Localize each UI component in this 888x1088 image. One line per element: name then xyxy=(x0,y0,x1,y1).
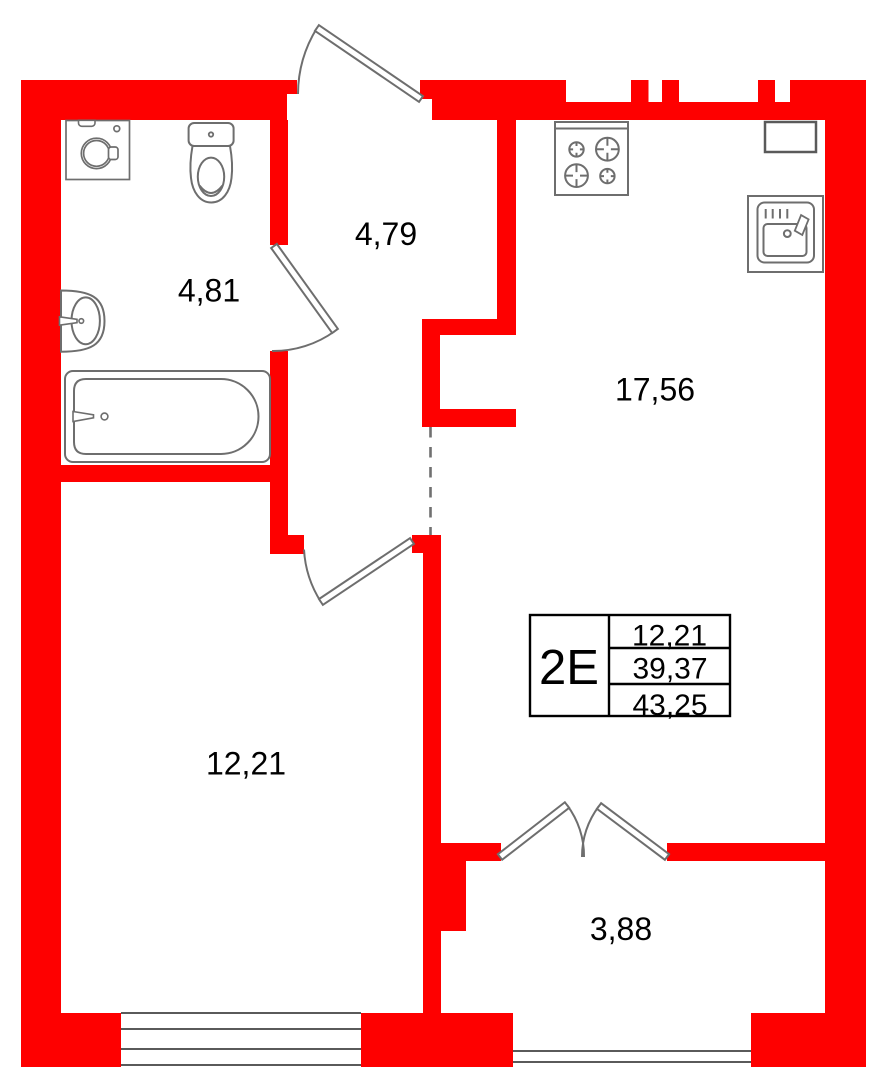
svg-text:12,21: 12,21 xyxy=(206,746,286,782)
svg-text:2E: 2E xyxy=(539,641,599,695)
svg-text:4,79: 4,79 xyxy=(355,216,417,252)
svg-text:3,88: 3,88 xyxy=(590,911,652,947)
svg-text:39,37: 39,37 xyxy=(632,653,707,686)
svg-text:17,56: 17,56 xyxy=(615,372,695,408)
svg-text:43,25: 43,25 xyxy=(632,689,707,722)
svg-text:12,21: 12,21 xyxy=(632,620,707,653)
svg-text:4,81: 4,81 xyxy=(178,273,240,309)
